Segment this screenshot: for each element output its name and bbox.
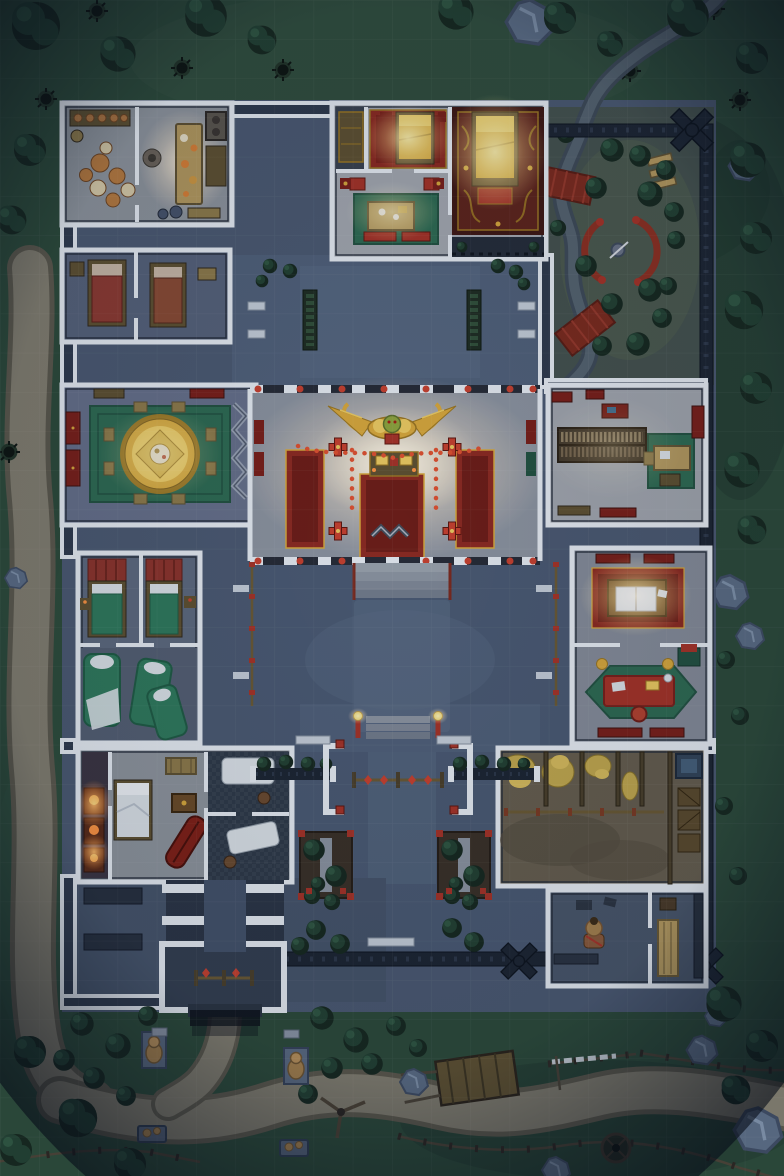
map-canvas <box>0 0 784 1176</box>
battle-map <box>0 0 784 1176</box>
night-vignette <box>0 0 784 1176</box>
